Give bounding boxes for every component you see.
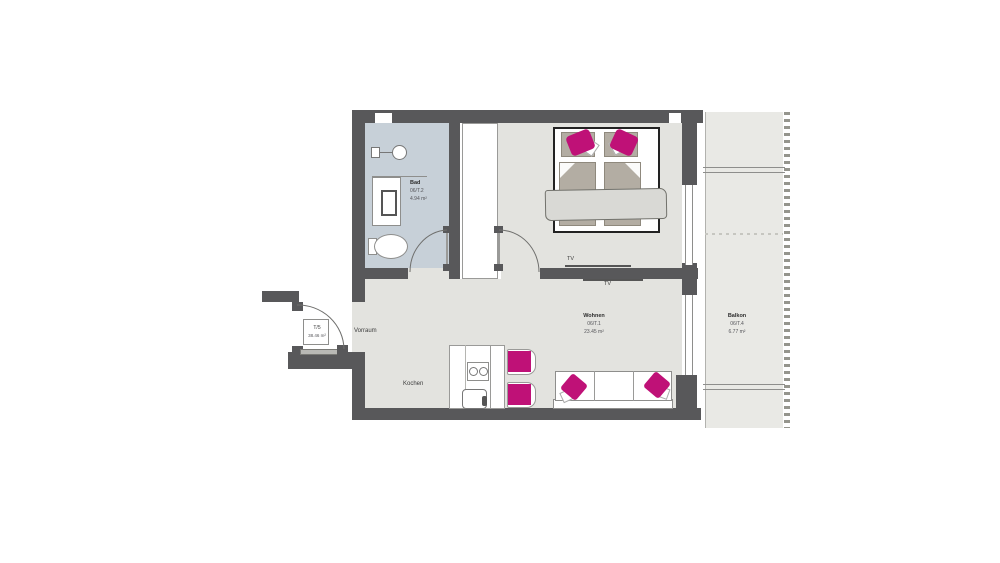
cooktop-burner-left [469, 367, 478, 376]
wall-mid-left-segment [352, 268, 408, 279]
bedroom-window [685, 185, 693, 265]
wall-bathroom-right [449, 123, 460, 279]
living-room-window [685, 295, 693, 375]
balcony-unit: 06/T.4 [715, 320, 759, 328]
tv-label-bedroom: TV [567, 256, 574, 262]
living-room-area: 23.45 m² [572, 328, 616, 336]
wall-top [352, 110, 703, 123]
wall-bottom [352, 408, 701, 420]
balcony-floor [705, 112, 783, 428]
balcony-overhang-dotted-line [705, 233, 783, 235]
sofa-seat-divider-2 [633, 371, 634, 401]
wall-top-shaft-notch [375, 113, 392, 123]
floor-plan: TV TV T/5 38.46 m² Bad 06/T.2 4.94 m² Wo… [0, 0, 1000, 563]
balcony-divider-bottom [703, 384, 785, 390]
bathroom-door-post-bottom [443, 264, 452, 271]
entry-unit-number: T/5 [304, 325, 330, 331]
cooktop-burner-right [479, 367, 488, 376]
bathroom-name: Bad [410, 179, 427, 187]
bedroom-door-opening [501, 268, 540, 279]
shower-valve [371, 147, 380, 158]
entry-unit-tag: T/5 38.46 m² [303, 319, 329, 345]
tv-line-bedroom [565, 265, 631, 267]
bathroom-unit: 06/T.2 [410, 187, 427, 195]
kitchen-counter-divider-2 [490, 345, 491, 409]
wall-top-right-notch [669, 113, 681, 123]
sofa-seat-divider-1 [594, 371, 595, 401]
duvet-right-fold [625, 163, 640, 178]
living-room-name: Wohnen [572, 312, 616, 320]
living-room-unit: 06/T.1 [572, 320, 616, 328]
bedroom-door-post-top [494, 226, 503, 233]
duvet-left-fold [560, 163, 575, 178]
tv-label-living: TV [604, 281, 611, 287]
toilet-bowl [374, 234, 408, 259]
bathroom-area: 4.94 m² [410, 195, 427, 203]
balcony-label: Balkon 06/T.4 6.77 m² [715, 312, 759, 336]
entry-door-jamb-top [292, 302, 303, 311]
dining-chair-2-seat [508, 384, 531, 405]
balcony-divider-top [703, 167, 785, 173]
balcony-railing [784, 112, 790, 428]
entry-unit-area: 38.46 m² [304, 333, 330, 338]
wall-vestibule-top [262, 291, 299, 302]
balcony-area: 6.77 m² [715, 328, 759, 336]
vestibule-label: Vorraum [354, 328, 377, 334]
bedroom-door-post-bottom [494, 264, 503, 271]
dining-chair-1-seat [508, 351, 531, 372]
wall-right-lower [676, 375, 697, 420]
balcony-name: Balkon [715, 312, 759, 320]
wardrobe [462, 123, 498, 279]
washbasin [381, 190, 397, 216]
entry-opening [352, 302, 365, 352]
bathroom-label: Bad 06/T.2 4.94 m² [410, 179, 427, 203]
tv-line-living [583, 279, 643, 281]
wall-right-upper [682, 123, 697, 185]
bedroom-door-leaf [498, 230, 500, 268]
shower-head [392, 145, 407, 160]
entry-door-end-block [337, 345, 348, 358]
bathroom-door-post-top [443, 226, 452, 233]
kitchen-label: Kochen [403, 381, 423, 387]
bathroom-door-leaf [446, 230, 448, 268]
bed-blanket [545, 188, 668, 221]
wall-right-middle [682, 263, 697, 295]
living-room-label: Wohnen 06/T.1 23.45 m² [572, 312, 616, 336]
wall-mid-right-segment [540, 268, 698, 279]
shower-arm-line [380, 152, 392, 153]
sink-tap [482, 396, 487, 406]
